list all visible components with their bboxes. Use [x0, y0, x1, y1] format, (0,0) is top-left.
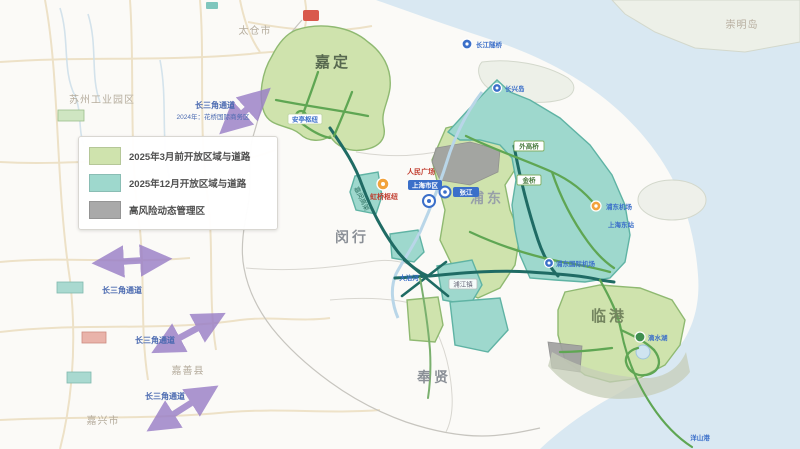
region-label-minhang: 闵行: [335, 229, 369, 245]
tunnel-label: 长江隧桥: [476, 40, 503, 49]
corridor-label-sw: 长三角通道: [135, 335, 175, 345]
legend-swatch-green: [89, 147, 121, 165]
label-jiashan: 嘉善县: [172, 364, 205, 377]
downtown-label: 上海市区: [412, 181, 439, 190]
east-station-label: 上海东站: [608, 220, 635, 229]
dishui-icon: [635, 332, 645, 342]
legend-label-march: 2025年3月前开放区域与道路: [129, 149, 250, 163]
dishui-label: 滴水湖: [648, 333, 668, 342]
landmark-zhangjiang: 张江: [440, 187, 480, 198]
hongqiao-label: 虹桥枢纽: [370, 192, 398, 201]
region-label-lingang: 临港: [591, 307, 627, 325]
landmark-jinqiao: 金桥: [517, 175, 541, 185]
renmin-label: 人民广场: [407, 167, 435, 176]
legend-item-december: 2025年12月开放区域与道路: [89, 174, 267, 192]
pvg-full-label: 浦东国际机场: [556, 259, 596, 268]
yangshan-label: 洋山港: [690, 433, 710, 442]
legend-swatch-teal: [89, 174, 121, 192]
landmark-waigaoqiao: 外高桥: [514, 141, 544, 151]
label-jiaxing: 嘉兴市: [87, 414, 120, 427]
legend-item-highrisk: 高风险动态管理区: [89, 201, 267, 219]
anting-label: 安亭枢纽: [292, 115, 319, 124]
corridor-label-nw: 长三角通道: [195, 100, 235, 110]
corridor-note-nw: 2024年：花桥国际商务区: [177, 112, 250, 121]
region-label-fengxian: 奉贤: [417, 369, 451, 385]
legend-swatch-gray: [89, 201, 121, 219]
corridor-label-south: 长三角通道: [145, 391, 185, 401]
hengsha-island: [638, 180, 706, 220]
label-suzhou-park: 苏州工业园区: [69, 93, 135, 106]
label-taicang: 太仓市: [239, 24, 272, 37]
corridor-label-west: 长三角通道: [102, 285, 142, 295]
region-label-jiading: 嘉定: [314, 53, 351, 71]
landmark-anting: 安亭枢纽: [288, 114, 322, 124]
landmark-pujiang: 浦江镇: [449, 279, 477, 289]
label-chongming: 崇明岛: [726, 18, 759, 31]
legend-label-highrisk: 高风险动态管理区: [129, 203, 205, 217]
zhangjiang-label: 张江: [460, 188, 474, 197]
highway-badge: [303, 10, 319, 21]
legend-item-march: 2025年3月前开放区域与道路: [89, 147, 267, 165]
corridor-arrow-west: [98, 259, 166, 263]
pvg-label: 浦东机场: [606, 202, 633, 211]
jinqiao-label: 金桥: [522, 176, 537, 185]
waigaoqiao-label: 外高桥: [519, 142, 539, 151]
map-screenshot: 嘉定 闵行 浦东 临港 奉贤 苏州工业园区 太仓市 嘉兴市 嘉善县 崇明岛 长三…: [0, 0, 800, 449]
legend-label-december: 2025年12月开放区域与道路: [129, 176, 246, 190]
pujiang-label: 浦江镇: [453, 280, 473, 289]
dazhihe-label: 大治河: [399, 273, 419, 282]
map-legend: 2025年3月前开放区域与道路 2025年12月开放区域与道路 高风险动态管理区: [78, 136, 278, 230]
changxing-label: 长兴岛: [505, 84, 525, 93]
